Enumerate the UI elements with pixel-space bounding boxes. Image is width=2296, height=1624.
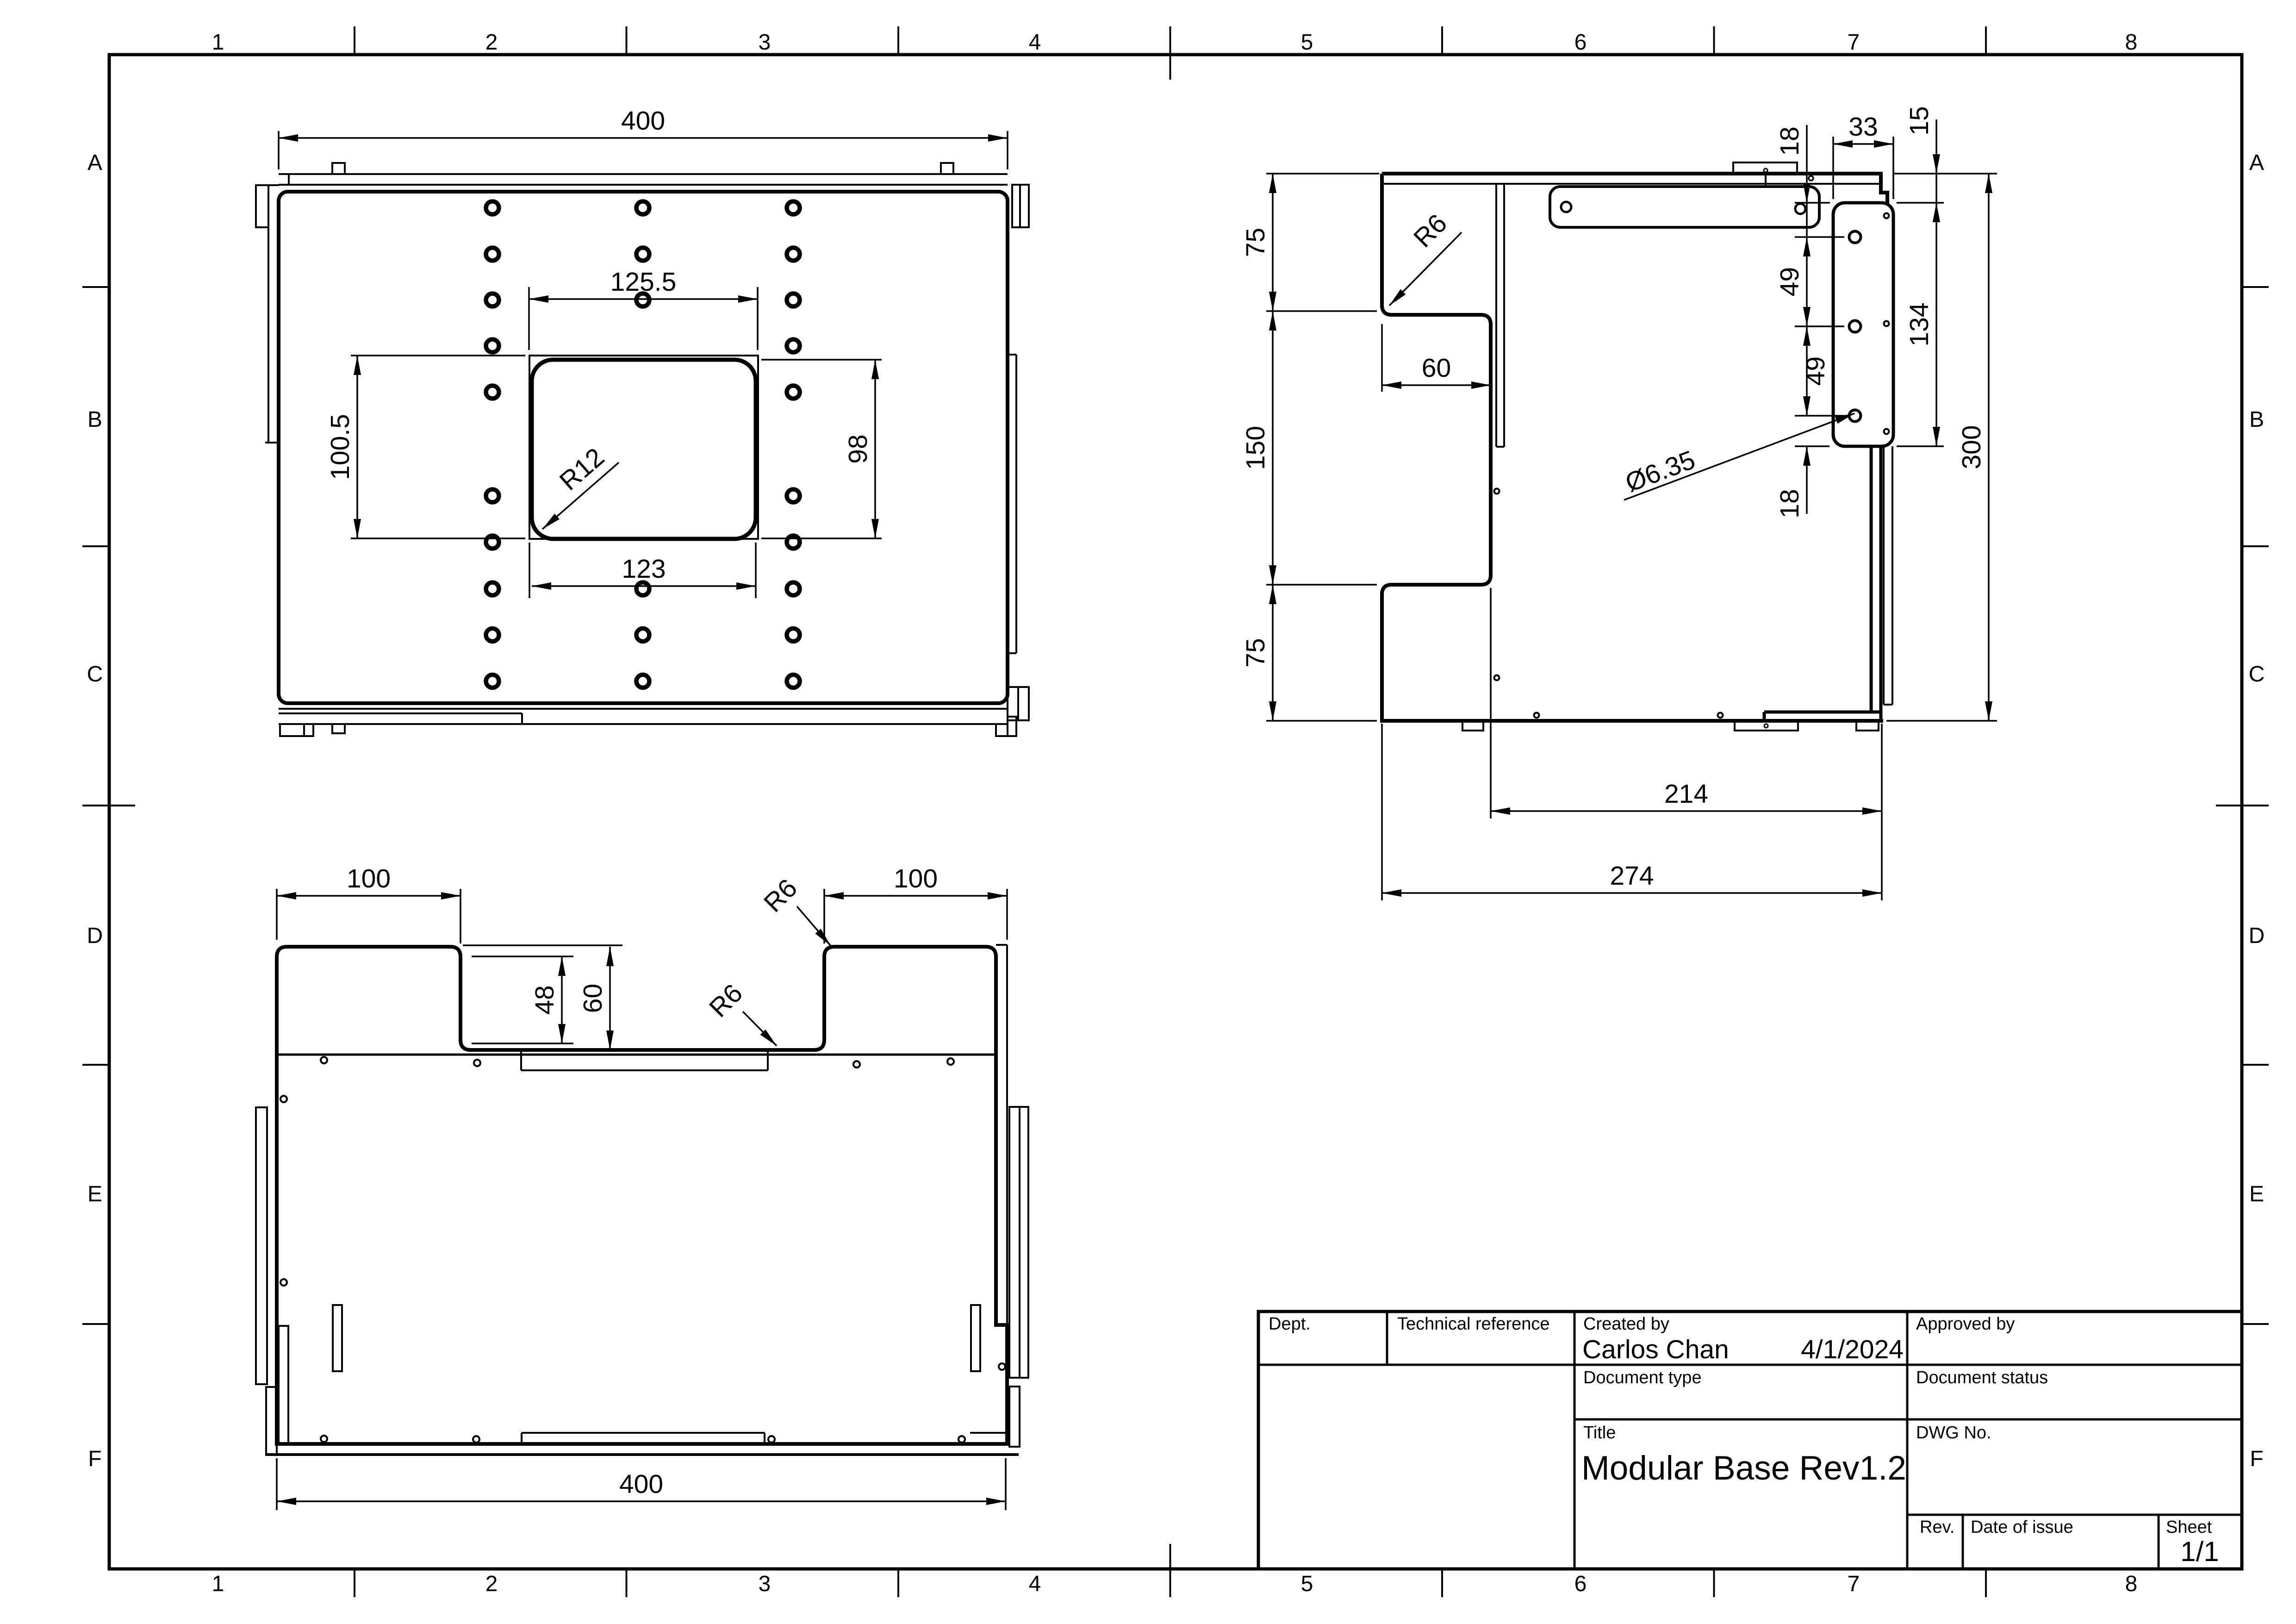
svg-text:2: 2 [485,1572,498,1596]
svg-text:DWG No.: DWG No. [1916,1423,1991,1443]
svg-text:A: A [87,150,102,175]
svg-text:274: 274 [1610,861,1654,891]
svg-text:5: 5 [1301,1572,1313,1596]
svg-text:1/1: 1/1 [2180,1536,2219,1567]
svg-text:15: 15 [1904,106,1934,135]
svg-text:49: 49 [1775,267,1804,296]
svg-text:5: 5 [1301,30,1313,55]
svg-text:400: 400 [621,106,665,136]
svg-text:3: 3 [759,30,771,55]
svg-text:B: B [87,407,102,432]
svg-text:75: 75 [1241,638,1270,667]
svg-text:Title: Title [1583,1423,1616,1443]
svg-text:1: 1 [212,30,224,55]
svg-text:60: 60 [1422,353,1451,383]
svg-text:F: F [88,1447,101,1471]
svg-text:48: 48 [530,985,560,1014]
svg-text:400: 400 [619,1469,663,1499]
svg-text:D: D [87,924,103,948]
svg-text:4/1/2024: 4/1/2024 [1801,1335,1904,1364]
svg-text:100: 100 [894,864,938,893]
svg-text:150: 150 [1241,426,1270,470]
svg-text:49: 49 [1801,356,1830,386]
svg-text:A: A [2249,150,2264,175]
svg-text:D: D [2249,924,2265,948]
svg-text:6: 6 [1574,30,1587,55]
svg-text:7: 7 [1848,1572,1860,1596]
svg-text:33: 33 [1848,112,1878,142]
svg-text:8: 8 [2125,30,2138,55]
svg-text:4: 4 [1029,30,1041,55]
svg-text:Rev.: Rev. [1920,1518,1954,1537]
svg-text:214: 214 [1664,779,1708,809]
svg-text:E: E [87,1182,102,1206]
svg-text:3: 3 [759,1572,771,1596]
svg-text:100: 100 [347,864,391,893]
svg-text:6: 6 [1574,1572,1587,1596]
svg-text:C: C [2249,662,2265,687]
svg-text:Document status: Document status [1916,1368,2048,1387]
svg-text:B: B [2249,407,2264,432]
svg-text:Dept.: Dept. [1269,1314,1311,1334]
svg-text:Date of issue: Date of issue [1971,1518,2073,1537]
svg-text:100.5: 100.5 [325,414,355,480]
svg-text:98: 98 [843,434,873,463]
svg-text:Document type: Document type [1583,1368,1702,1387]
svg-text:Sheet: Sheet [2166,1518,2212,1537]
svg-text:134: 134 [1904,302,1934,346]
svg-text:8: 8 [2125,1572,2138,1596]
svg-text:18: 18 [1775,489,1804,518]
svg-text:2: 2 [485,30,498,55]
svg-text:125.5: 125.5 [610,267,677,297]
svg-text:60: 60 [578,984,608,1013]
svg-text:123: 123 [622,554,666,584]
svg-text:300: 300 [1957,425,1986,469]
svg-text:1: 1 [212,1572,224,1596]
svg-text:Created by: Created by [1583,1314,1669,1334]
svg-text:F: F [2250,1447,2263,1471]
svg-text:E: E [2249,1182,2264,1206]
svg-text:C: C [87,662,103,687]
svg-text:Approved by: Approved by [1916,1314,2015,1334]
svg-text:7: 7 [1848,30,1860,55]
svg-text:Carlos Chan: Carlos Chan [1582,1335,1729,1364]
svg-text:75: 75 [1241,228,1270,257]
svg-text:18: 18 [1775,126,1804,156]
svg-text:4: 4 [1029,1572,1041,1596]
svg-text:Technical reference: Technical reference [1397,1314,1550,1334]
svg-text:Modular Base Rev1.2: Modular Base Rev1.2 [1581,1449,1906,1487]
